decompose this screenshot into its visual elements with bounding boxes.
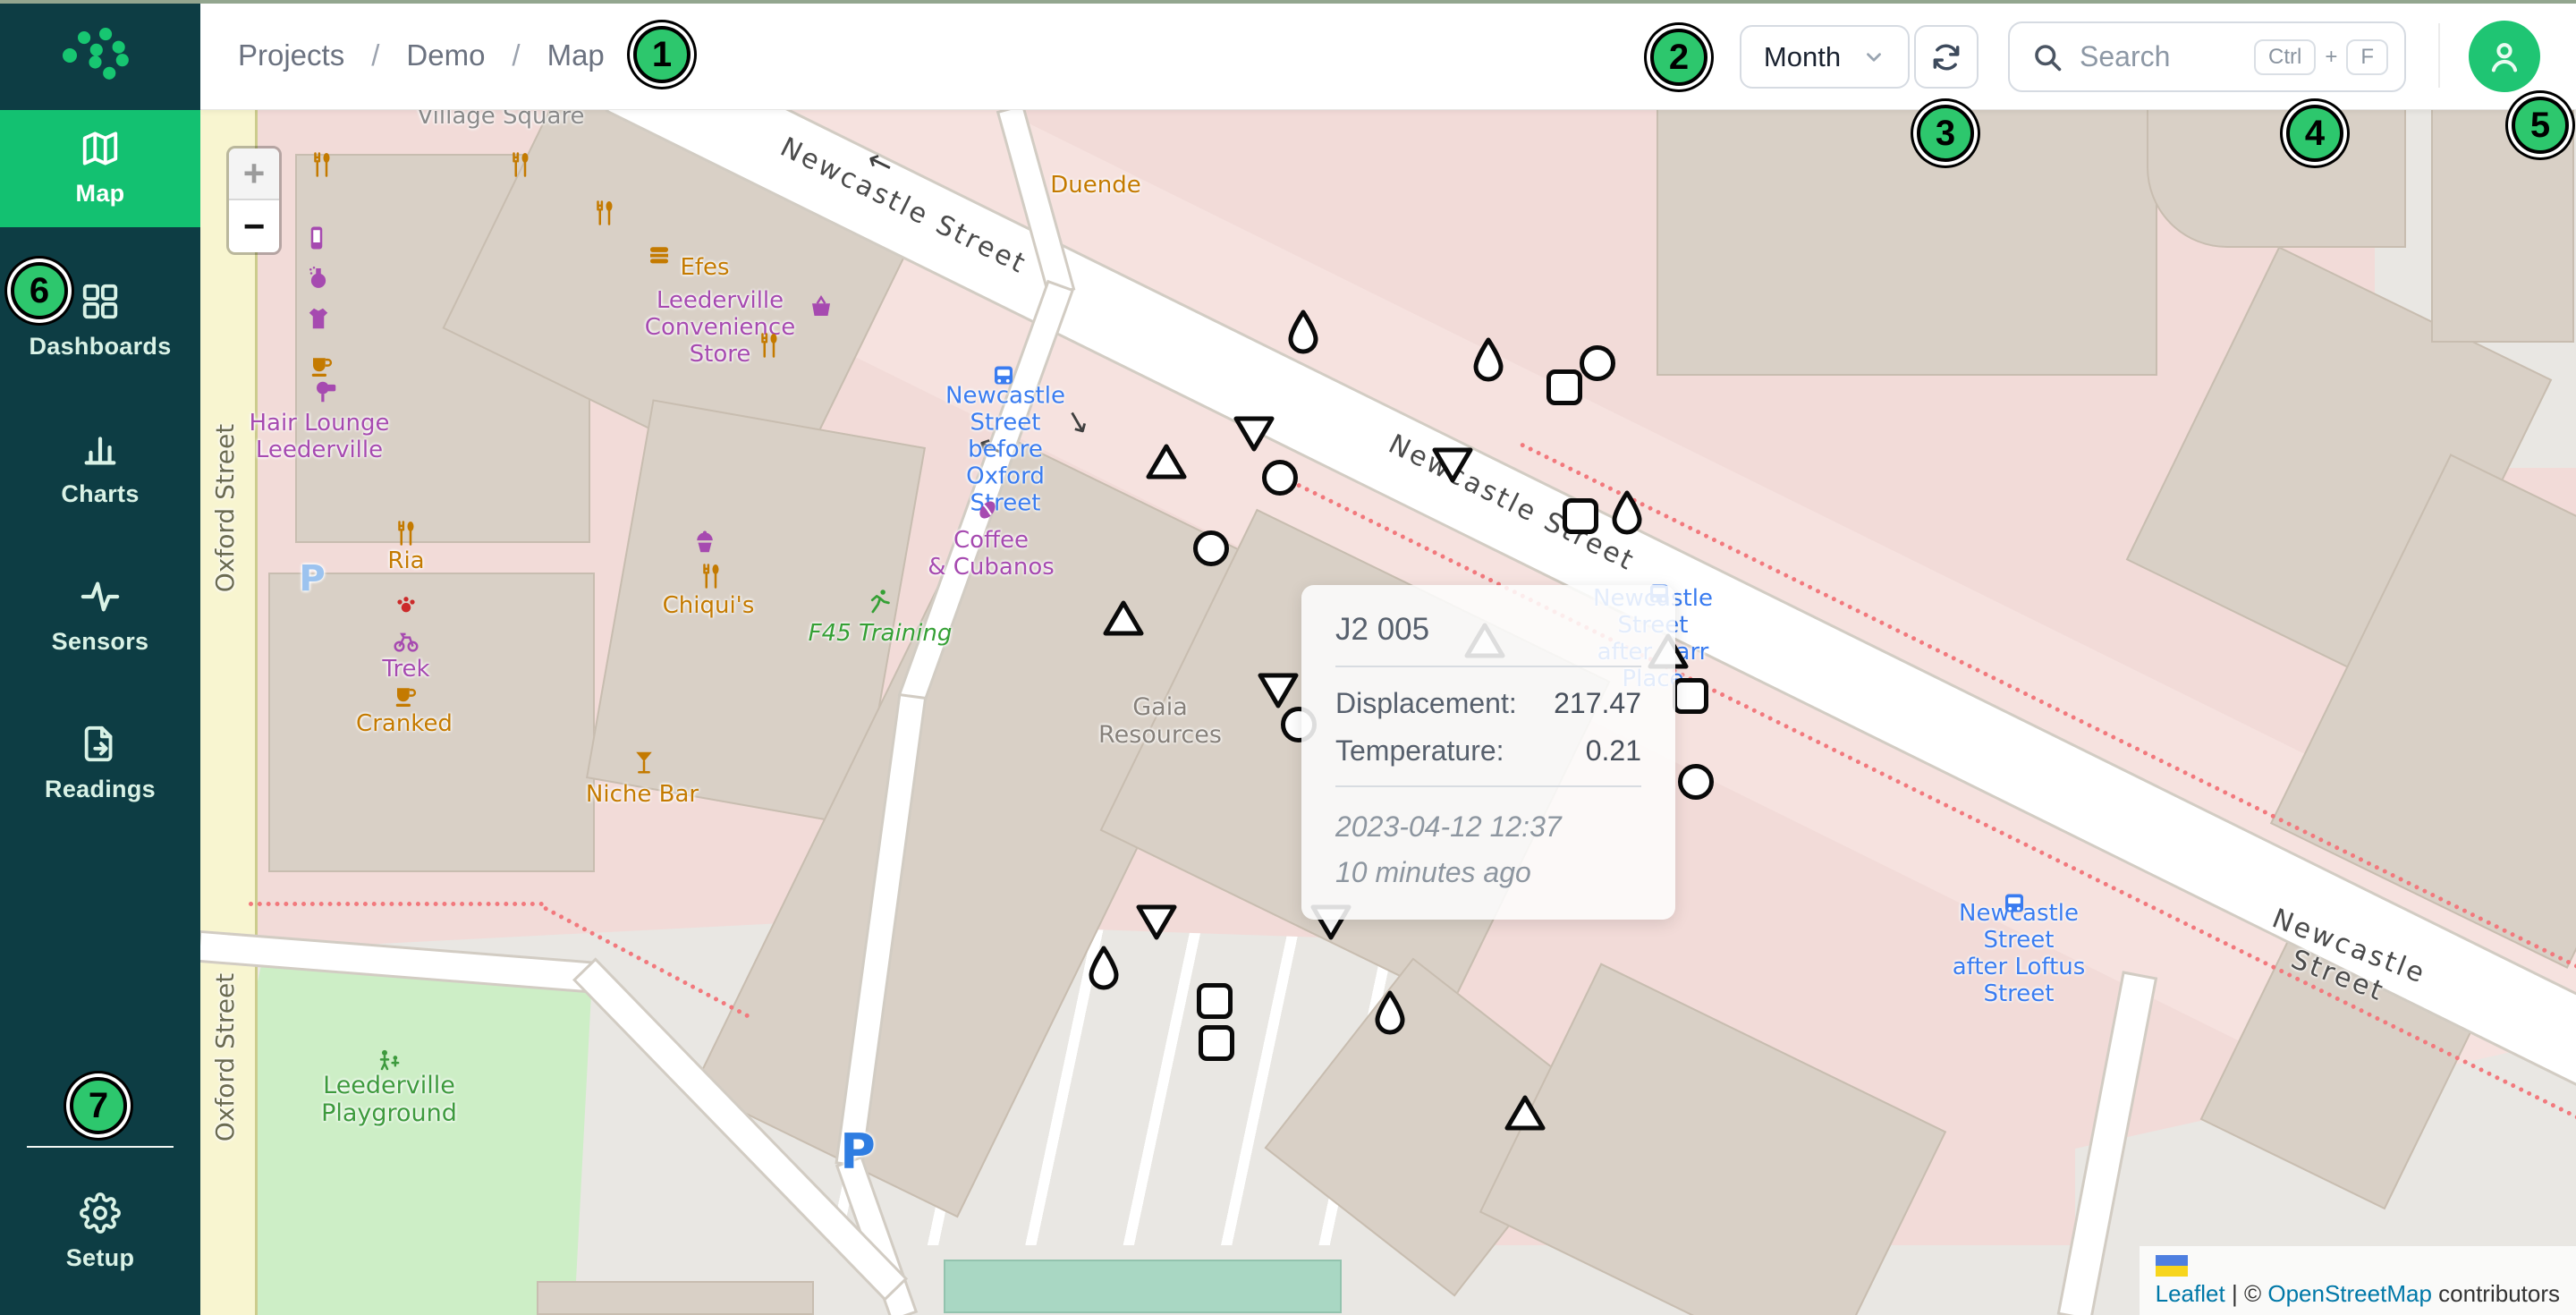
breadcrumb: Projects / Demo / Map — [238, 0, 605, 110]
sensor-marker-circle[interactable] — [1676, 762, 1716, 805]
sidebar-item-label: Readings — [45, 776, 156, 803]
kbd-ctrl: Ctrl — [2254, 39, 2316, 75]
sidebar-item-charts[interactable]: Charts — [0, 411, 200, 528]
sidebar-item-map[interactable]: Map — [0, 110, 200, 227]
sensor-marker-square[interactable] — [1197, 1023, 1236, 1066]
map-icon — [80, 128, 121, 169]
map-label: Efes — [680, 255, 729, 282]
sensor-marker-square[interactable] — [1545, 368, 1584, 411]
map-label: Cranked — [356, 711, 453, 738]
sensor-marker-droplet[interactable] — [1610, 490, 1644, 539]
search-input[interactable] — [2080, 40, 2238, 73]
poi-runner-icon — [867, 588, 894, 618]
annotation-badge-2: 2 — [1650, 29, 1707, 86]
poi-bean-icon — [974, 496, 1001, 527]
grid-icon — [80, 281, 121, 322]
kbd-plus: + — [2325, 45, 2337, 70]
app-logo[interactable] — [0, 0, 200, 110]
annotation-badge-4: 4 — [2286, 105, 2343, 162]
breadcrumb-map[interactable]: Map — [547, 38, 605, 72]
poi-cup-icon — [393, 683, 419, 713]
map-label: P — [299, 558, 325, 599]
logo-icon — [57, 13, 143, 98]
map-label: Oxford Street — [211, 973, 240, 1141]
attribution-copyright: © — [2244, 1280, 2261, 1307]
attribution-separator: | — [2232, 1280, 2238, 1307]
map-building-teal — [944, 1260, 1342, 1313]
poi-fork-icon — [591, 199, 618, 230]
map-label: Duende — [1050, 173, 1140, 199]
sidebar-item-label: Map — [76, 180, 125, 208]
map-label: Niche Bar — [586, 782, 699, 809]
attribution-suffix: contributors — [2438, 1280, 2560, 1307]
poi-tshirt-icon — [305, 305, 332, 335]
tooltip-relative-time: 10 minutes ago — [1335, 856, 1641, 889]
leaflet-link[interactable]: Leaflet — [2156, 1280, 2225, 1307]
map-label: Leederville Playground — [321, 1072, 457, 1127]
user-avatar-button[interactable] — [2469, 21, 2540, 92]
sidebar-item-label: Charts — [61, 480, 139, 508]
map-label: Oxford Street — [211, 424, 240, 592]
poi-bus-icon — [2001, 892, 2028, 922]
map-label: Chiqui's — [663, 593, 755, 620]
sidebar-bottom: Setup — [0, 1146, 200, 1292]
poi-paw-icon — [393, 591, 419, 622]
sensor-marker-square[interactable] — [1671, 676, 1710, 719]
sensor-marker-triup[interactable] — [1504, 1094, 1546, 1135]
poi-perfume-icon — [305, 264, 332, 294]
sidebar-nav: Map Dashboards Charts Sensors Readings — [0, 110, 200, 823]
sidebar-setup-slot: Setup — [0, 1175, 200, 1292]
map-label: Coffee & Cubanos — [928, 528, 1055, 581]
sensor-marker-droplet[interactable] — [1373, 990, 1407, 1039]
poi-cupcake-icon — [691, 529, 718, 559]
period-dropdown[interactable]: Month — [1740, 25, 1910, 89]
sensor-marker-droplet[interactable] — [1087, 946, 1121, 994]
poi-fork-icon — [698, 563, 724, 593]
tooltip-row-value: 0.21 — [1586, 734, 1641, 768]
openstreetmap-link[interactable]: OpenStreetMap — [2267, 1280, 2432, 1307]
tooltip-divider — [1335, 666, 1641, 667]
annotation-badge-6: 6 — [11, 262, 68, 319]
sensor-marker-triup[interactable] — [1103, 599, 1144, 641]
poi-bike-icon — [393, 628, 419, 658]
poi-fork-icon — [309, 151, 335, 182]
poi-cocktail-icon — [631, 749, 657, 779]
tooltip-divider — [1335, 785, 1641, 787]
readings-icon — [80, 724, 121, 765]
poi-dryer-icon — [312, 378, 339, 409]
annotation-badge-1: 1 — [633, 26, 691, 83]
annotation-badge-3: 3 — [1917, 105, 1974, 162]
sensor-marker-droplet[interactable] — [1286, 310, 1320, 358]
poi-fork-icon — [393, 520, 419, 550]
user-icon — [2485, 37, 2524, 76]
map-label: Village Square — [417, 110, 584, 131]
desktop-edge-strip — [0, 0, 2576, 4]
tooltip-title: J2 005 — [1335, 612, 1641, 648]
map-label: Newcastle Street before Oxford Street — [945, 383, 1065, 516]
period-dropdown-value: Month — [1764, 41, 1841, 73]
poi-bus-icon — [990, 364, 1017, 394]
path-dash — [249, 902, 544, 906]
tooltip-row-displacement: Displacement: 217.47 — [1335, 687, 1641, 720]
search-icon — [2031, 41, 2063, 73]
sidebar-item-label: Dashboards — [29, 333, 171, 361]
sensor-marker-square[interactable] — [1561, 496, 1600, 539]
sensor-marker-tridown[interactable] — [1233, 415, 1275, 456]
sidebar-item-setup[interactable]: Setup — [0, 1175, 200, 1292]
breadcrumb-projects[interactable]: Projects — [238, 38, 344, 72]
poi-playground-icon — [376, 1047, 402, 1077]
sensor-marker-tridown[interactable] — [1432, 446, 1473, 488]
map-building — [2147, 110, 2406, 248]
tooltip-row-value: 217.47 — [1554, 687, 1641, 720]
header: Projects / Demo / Map Month — [200, 0, 2576, 110]
refresh-icon — [1929, 40, 1963, 74]
sensor-marker-square[interactable] — [1195, 981, 1234, 1024]
poi-phone-icon — [303, 225, 330, 255]
map-label: F45 Training — [809, 621, 953, 648]
zoom-in-button[interactable]: + — [229, 148, 279, 200]
poi-fork-icon — [756, 332, 783, 362]
sensor-marker-droplet[interactable] — [1471, 337, 1505, 386]
app-window: + − J2 005 Displacement: 217.47 Temperat… — [0, 0, 2576, 1315]
chevron-down-icon — [1862, 46, 1885, 69]
breadcrumb-demo[interactable]: Demo — [406, 38, 485, 72]
tooltip-row-temperature: Temperature: 0.21 — [1335, 734, 1641, 768]
tooltip-row-label: Displacement: — [1335, 687, 1517, 720]
poi-fork-icon — [507, 151, 534, 182]
sidebar-item-readings[interactable]: Readings — [0, 706, 200, 823]
map-label: Trek — [382, 657, 429, 683]
kbd-f: F — [2346, 39, 2388, 75]
map-building — [537, 1281, 814, 1315]
sensor-marker-circle[interactable] — [1191, 529, 1231, 572]
annotation-badge-7: 7 — [70, 1077, 127, 1134]
activity-icon — [80, 576, 121, 617]
sensor-marker-tridown[interactable] — [1136, 904, 1177, 945]
sidebar-divider — [27, 1146, 174, 1148]
sidebar-item-label: Sensors — [52, 628, 149, 656]
breadcrumb-separator: / — [371, 38, 379, 72]
breadcrumb-separator: / — [512, 38, 520, 72]
map-label: Ria — [387, 548, 424, 575]
zoom-out-button[interactable]: − — [229, 200, 279, 252]
search-box[interactable]: Ctrl + F — [2008, 21, 2406, 92]
gear-icon — [80, 1192, 121, 1234]
annotation-badge-5: 5 — [2512, 97, 2569, 154]
sidebar-item-label: Setup — [66, 1244, 135, 1272]
ukraine-flag-icon — [2156, 1255, 2188, 1277]
map-label: P — [840, 1124, 876, 1180]
sidebar-item-sensors[interactable]: Sensors — [0, 558, 200, 675]
map-zoom-control: + − — [226, 146, 282, 255]
poi-burger-icon — [646, 242, 673, 272]
map-building — [1657, 110, 2157, 376]
sensor-marker-circle[interactable] — [1260, 458, 1300, 501]
tooltip-timestamp: 2023-04-12 12:37 — [1335, 810, 1641, 844]
map-canvas[interactable]: + − J2 005 Displacement: 217.47 Temperat… — [200, 110, 2576, 1315]
sensor-marker-triup[interactable] — [1146, 443, 1187, 484]
header-divider — [2438, 23, 2440, 88]
map-attribution: Leaflet | © OpenStreetMap contributors — [2140, 1246, 2576, 1315]
sensor-tooltip: J2 005 Displacement: 217.47 Temperature:… — [1301, 585, 1675, 920]
chart-icon — [80, 428, 121, 470]
refresh-button[interactable] — [1914, 25, 1979, 89]
map-label: Gaia Resources — [1098, 693, 1222, 749]
map-label: Hair Lounge Leederville — [249, 411, 389, 464]
tooltip-row-label: Temperature: — [1335, 734, 1504, 768]
poi-basket-icon — [808, 293, 835, 324]
